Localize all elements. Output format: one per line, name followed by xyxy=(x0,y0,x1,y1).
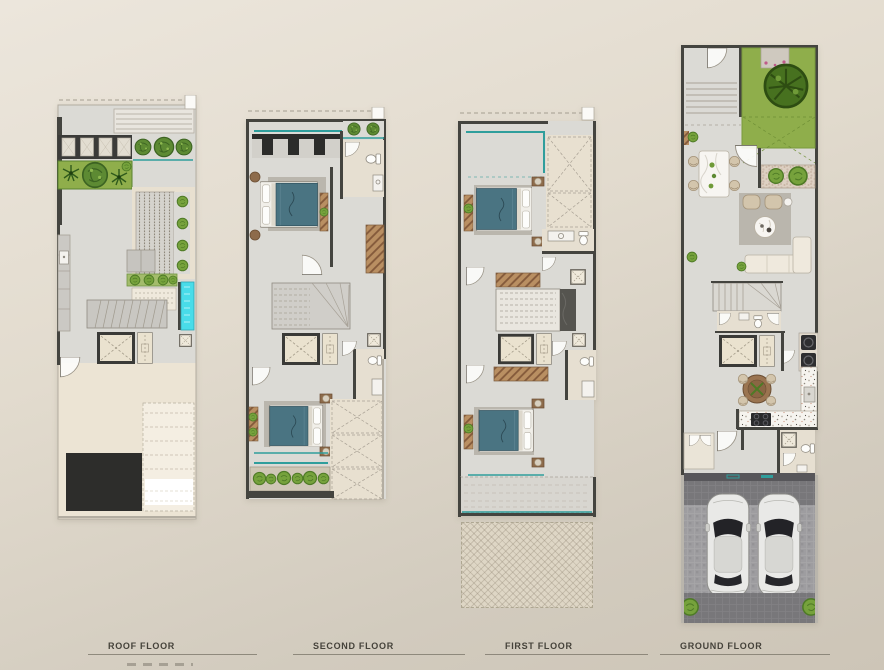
label-first-floor-rule xyxy=(485,654,648,655)
roof-floor-plan xyxy=(57,95,197,520)
ground-floor-plan xyxy=(681,45,818,623)
car-icon xyxy=(756,494,801,597)
roof-bench xyxy=(127,250,155,272)
label-ground-floor-text: GROUND FLOOR xyxy=(660,641,830,651)
roof-louver-canopy xyxy=(114,109,194,133)
second-bath-top xyxy=(340,121,384,199)
roof-bottom-edge xyxy=(58,516,196,518)
first-floor-canopy-hatch xyxy=(461,522,593,608)
second-planter xyxy=(246,467,334,498)
label-first-floor-text: FIRST FLOOR xyxy=(485,641,648,651)
label-roof-floor-rule xyxy=(88,654,257,655)
second-stairs xyxy=(272,283,350,329)
first-terrace-top xyxy=(546,135,593,229)
label-first-floor: FIRST FLOOR xyxy=(485,641,648,655)
second-closet xyxy=(366,225,384,273)
label-second-floor-text: SECOND FLOOR xyxy=(293,641,465,651)
ground-bathroom xyxy=(777,430,815,475)
first-floor-plan xyxy=(458,107,596,517)
ground-garage xyxy=(681,473,818,623)
label-roof-floor-text: ROOF FLOOR xyxy=(88,641,257,651)
first-stairs xyxy=(496,289,576,331)
ground-breakfast-table xyxy=(738,374,775,405)
second-wardrobe xyxy=(252,131,342,158)
roof-skylights xyxy=(58,135,132,159)
roof-stairs xyxy=(87,300,167,328)
ground-entry-stairs xyxy=(684,48,742,117)
label-second-floor: SECOND FLOOR xyxy=(293,641,465,655)
car-icon xyxy=(705,494,750,597)
second-floor-plan xyxy=(246,107,388,517)
ground-stairs xyxy=(711,281,783,311)
label-roof-floor: ROOF FLOOR xyxy=(88,641,257,655)
roof-floor-plan-drawing xyxy=(57,95,197,520)
label-second-floor-rule xyxy=(293,654,465,655)
roof-planter-strip xyxy=(127,274,177,286)
dimension-marks xyxy=(127,663,193,666)
roof-jacuzzi-pool xyxy=(178,282,194,330)
roof-planter-garden xyxy=(58,161,132,189)
ground-elevator-icon xyxy=(721,336,775,367)
ground-powder-room xyxy=(717,311,781,333)
floorplan-sheet: ROOF FLOOR SECOND FLOOR FIRST FLOOR GROU… xyxy=(0,0,884,670)
first-floor-plan-drawing xyxy=(458,107,596,517)
label-ground-floor-rule xyxy=(660,654,830,655)
label-ground-floor: GROUND FLOOR xyxy=(660,641,830,655)
second-floor-plan-drawing xyxy=(246,107,388,517)
ground-floor-plan-drawing xyxy=(681,45,818,623)
first-balcony xyxy=(458,477,596,517)
